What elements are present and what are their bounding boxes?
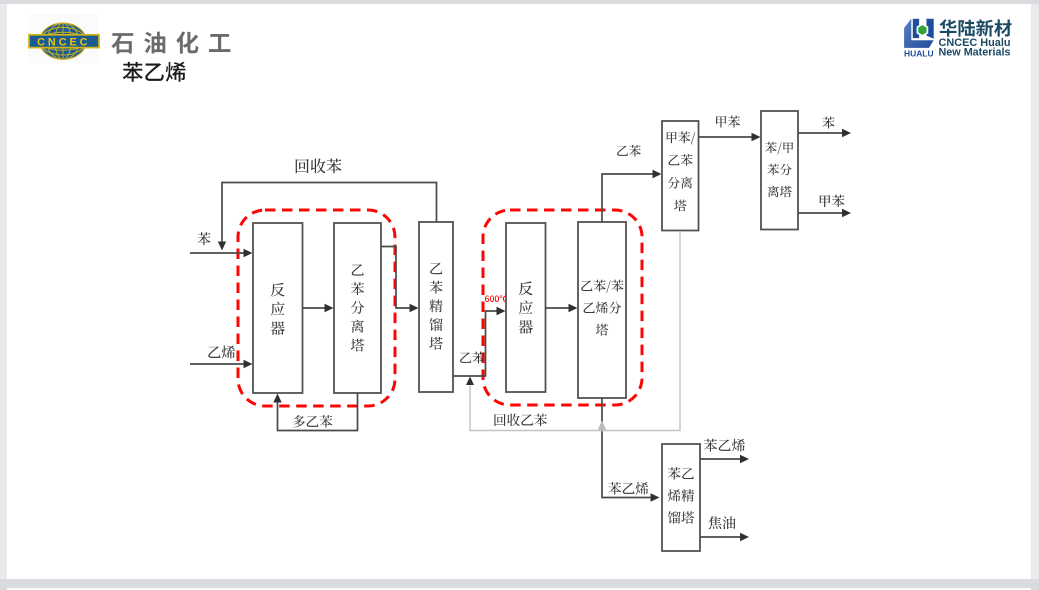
- svg-text:CNCEC: CNCEC: [37, 37, 90, 49]
- svg-text:New Materials: New Materials: [939, 46, 1011, 58]
- svg-text:HUALU: HUALU: [904, 48, 934, 58]
